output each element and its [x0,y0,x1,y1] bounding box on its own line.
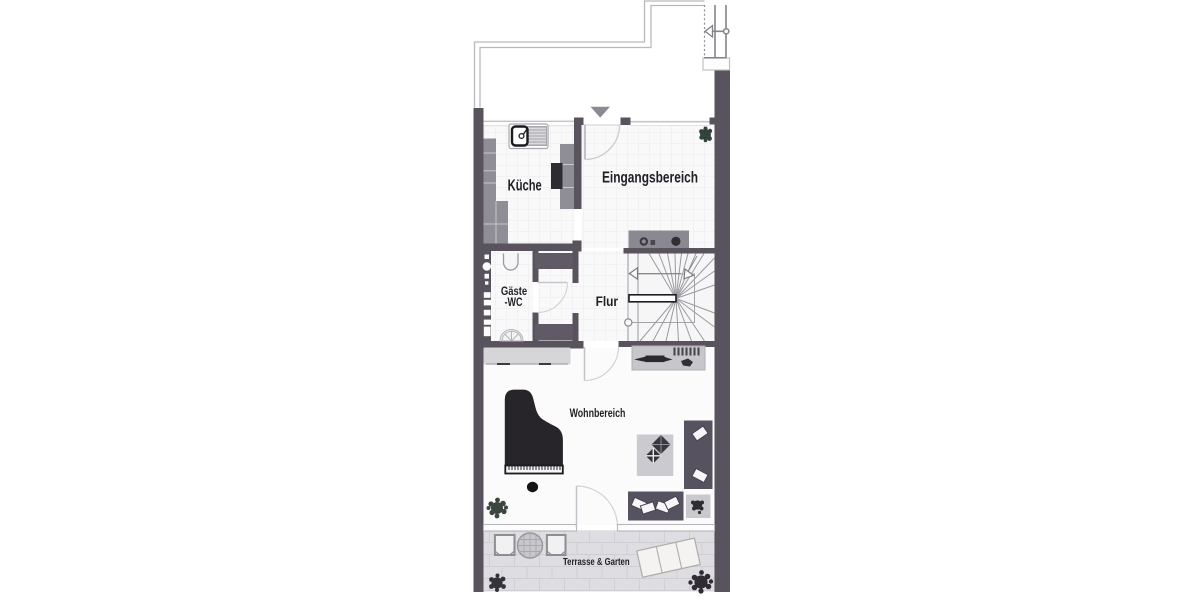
svg-text:Küche: Küche [508,177,542,194]
svg-text:Flur: Flur [596,293,618,309]
svg-text:Terrasse & Garten: Terrasse & Garten [563,556,630,567]
svg-text:-WC: -WC [505,296,523,310]
svg-text:Wohnbereich: Wohnbereich [570,408,626,420]
svg-text:Eingangsbereich: Eingangsbereich [602,168,698,186]
